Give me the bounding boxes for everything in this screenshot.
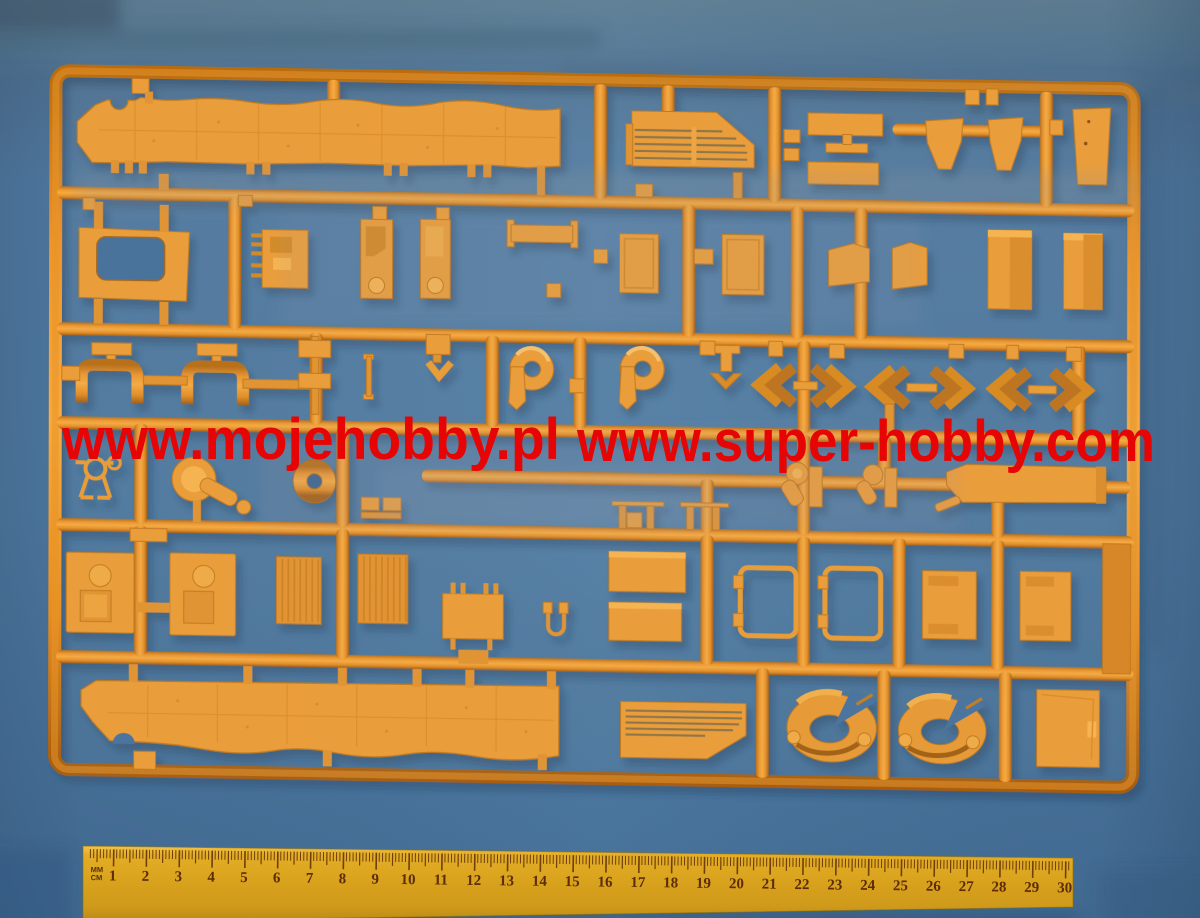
svg-text:9: 9 [371,872,379,888]
svg-text:26: 26 [926,879,942,895]
svg-text:6: 6 [273,870,281,886]
svg-text:10: 10 [400,872,415,888]
svg-text:13: 13 [499,873,514,889]
svg-text:4: 4 [207,870,215,886]
svg-text:28: 28 [991,879,1006,895]
svg-text:2: 2 [142,869,150,885]
svg-text:5: 5 [240,870,248,886]
svg-text:15: 15 [565,874,580,890]
svg-text:1: 1 [109,868,117,884]
svg-text:7: 7 [306,871,314,887]
svg-text:21: 21 [762,877,777,893]
svg-text:16: 16 [597,874,613,890]
svg-text:30: 30 [1057,880,1072,896]
svg-text:19: 19 [696,876,711,892]
svg-text:27: 27 [959,879,975,895]
svg-text:29: 29 [1024,880,1039,896]
svg-text:20: 20 [729,876,744,892]
svg-text:12: 12 [466,873,481,889]
svg-text:www.super-hobby.com: www.super-hobby.com [576,409,1155,474]
svg-text:25: 25 [893,878,908,894]
svg-text:23: 23 [827,877,842,893]
svg-text:22: 22 [794,877,809,893]
svg-text:17: 17 [630,875,646,891]
svg-text:8: 8 [339,871,347,887]
svg-text:3: 3 [174,869,182,885]
svg-text:www.mojehobby.pl: www.mojehobby.pl [61,407,560,472]
svg-text:11: 11 [434,872,448,888]
svg-text:14: 14 [532,874,548,890]
svg-text:24: 24 [860,878,876,894]
svg-text:CM: CM [91,873,103,882]
svg-text:18: 18 [663,875,678,891]
